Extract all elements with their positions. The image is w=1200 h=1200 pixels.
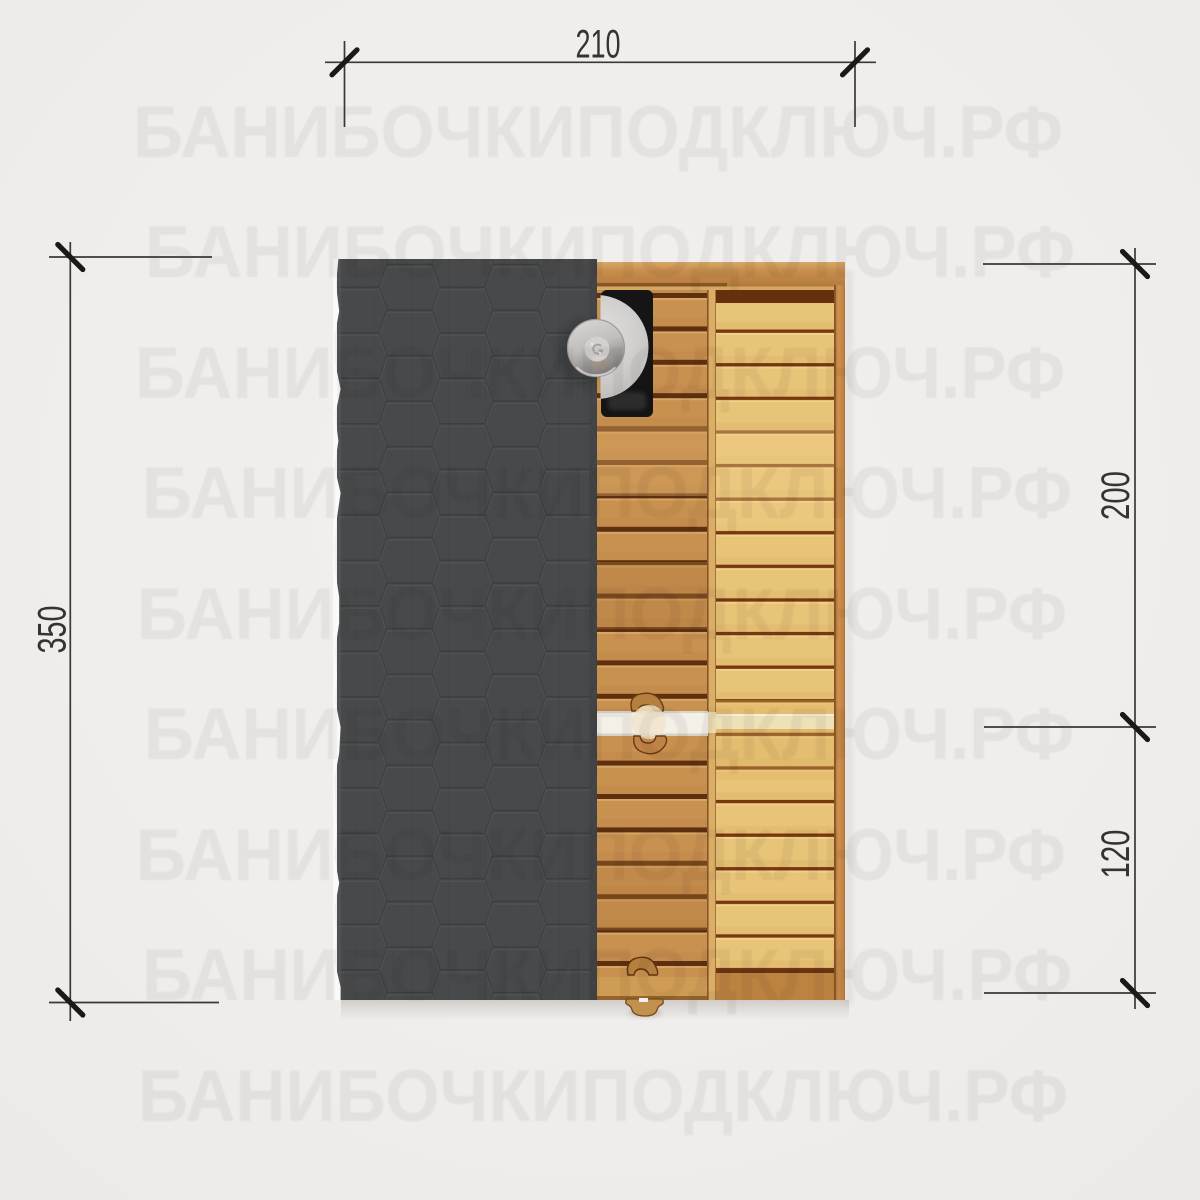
svg-text:БАНИБОЧКИПОДКЛЮЧ.РФ: БАНИБОЧКИПОДКЛЮЧ.РФ: [137, 574, 1067, 655]
svg-text:210: 210: [576, 23, 621, 67]
svg-text:200: 200: [1094, 471, 1138, 520]
svg-text:БАНИБОЧКИПОДКЛЮЧ.РФ: БАНИБОЧКИПОДКЛЮЧ.РФ: [144, 694, 1074, 775]
svg-text:350: 350: [31, 606, 75, 654]
svg-text:БАНИБОЧКИПОДКЛЮЧ.РФ: БАНИБОЧКИПОДКЛЮЧ.РФ: [135, 333, 1065, 414]
svg-text:БАНИБОЧКИПОДКЛЮЧ.РФ: БАНИБОЧКИПОДКЛЮЧ.РФ: [136, 815, 1066, 896]
svg-text:БАНИБОЧКИПОДКЛЮЧ.РФ: БАНИБОЧКИПОДКЛЮЧ.РФ: [138, 1056, 1068, 1137]
svg-text:120: 120: [1094, 830, 1138, 879]
svg-text:БАНИБОЧКИПОДКЛЮЧ.РФ: БАНИБОЧКИПОДКЛЮЧ.РФ: [142, 935, 1072, 1016]
svg-text:БАНИБОЧКИПОДКЛЮЧ.РФ: БАНИБОЧКИПОДКЛЮЧ.РФ: [142, 453, 1072, 534]
svg-text:БАНИБОЧКИПОДКЛЮЧ.РФ: БАНИБОЧКИПОДКЛЮЧ.РФ: [145, 212, 1075, 293]
svg-text:БАНИБОЧКИПОДКЛЮЧ.РФ: БАНИБОЧКИПОДКЛЮЧ.РФ: [133, 92, 1063, 173]
